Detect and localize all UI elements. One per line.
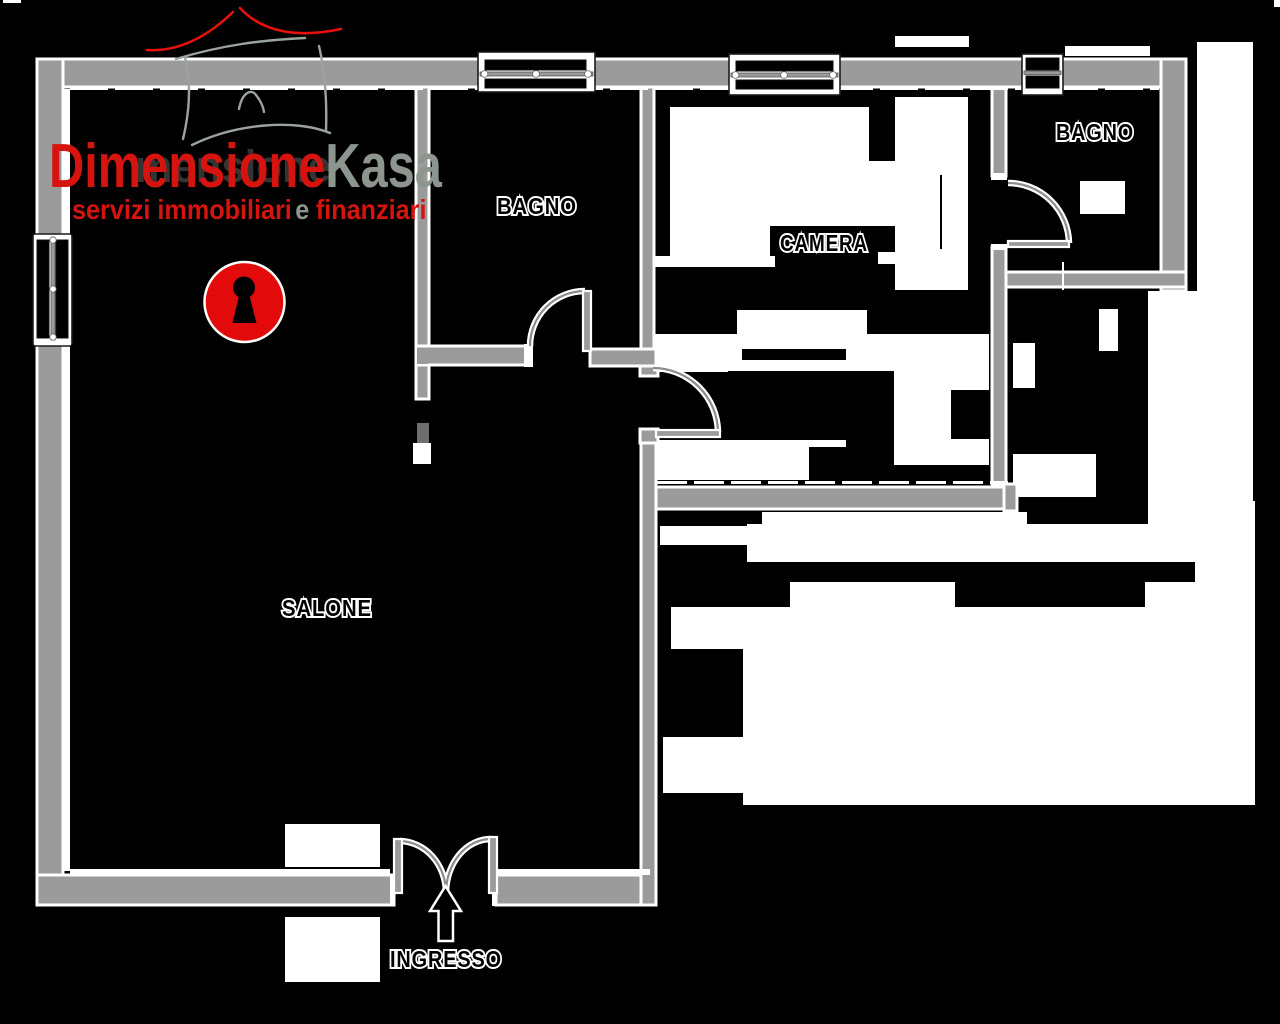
svg-text:SALONE: SALONE — [282, 595, 372, 621]
svg-text:e: e — [295, 194, 309, 226]
svg-text:BAGNO: BAGNO — [497, 193, 577, 219]
svg-text:Dimensione: Dimensione — [49, 131, 325, 200]
svg-text:CAMERA: CAMERA — [780, 230, 868, 256]
svg-text:servizi immobiliari: servizi immobiliari — [72, 194, 292, 226]
svg-text:finanziari: finanziari — [316, 194, 427, 226]
svg-text:BAGNO: BAGNO — [1056, 119, 1134, 145]
svg-text:INGRESSO: INGRESSO — [390, 946, 502, 972]
svg-text:Kasa: Kasa — [325, 131, 442, 200]
